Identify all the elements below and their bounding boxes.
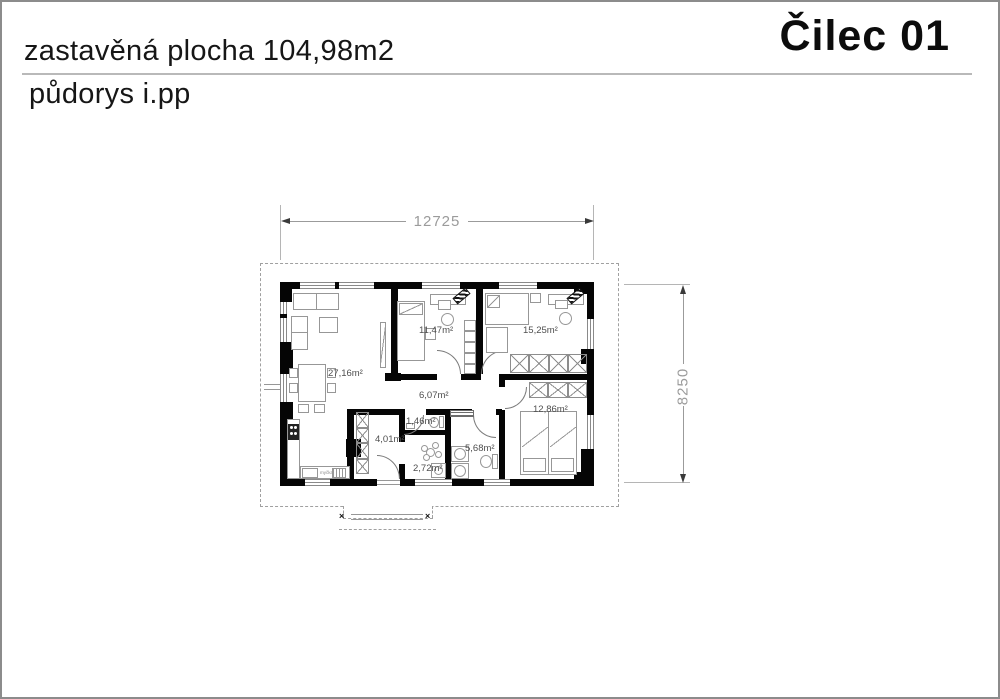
shelf-cell [356, 443, 369, 459]
chair [289, 383, 298, 393]
wall-segment [461, 374, 481, 380]
porch-post-marker: × [339, 512, 344, 521]
burner [290, 432, 293, 435]
dim-line [683, 292, 684, 364]
boiler-unit [432, 442, 439, 449]
dim-extension-line [280, 205, 281, 260]
wardrobe [529, 382, 587, 398]
room-label-living: 27,16m² [328, 368, 363, 379]
blanket-mark [550, 427, 576, 447]
dishrack [332, 468, 346, 478]
wall-segment [496, 409, 502, 415]
window [587, 319, 594, 349]
wardrobe-cell [529, 382, 548, 398]
project-name: Čilec 01 [779, 12, 950, 61]
room-label-bedroom2: 15,25m² [523, 325, 558, 336]
pillow [551, 458, 574, 472]
window [415, 479, 452, 486]
dim-line [468, 221, 588, 222]
header-divider [22, 73, 972, 75]
entrance-threshold [377, 484, 400, 485]
bed-center-line [548, 411, 549, 475]
wall-segment [400, 479, 415, 486]
dim-line [683, 406, 684, 476]
boiler-unit [423, 454, 430, 461]
coffee-table [319, 317, 338, 333]
room-label-tech: 2,72m² [413, 463, 443, 474]
porch-edge [339, 529, 436, 530]
dim-arrow-left [281, 218, 290, 224]
dining-table [298, 364, 326, 402]
pillow [399, 303, 423, 315]
burner [294, 426, 297, 429]
wardrobe-cell [548, 382, 567, 398]
radiator-mark [380, 322, 386, 368]
chair [298, 404, 309, 413]
window-mullion [280, 314, 287, 318]
chair [289, 368, 298, 378]
dim-width-label: 12725 [407, 213, 467, 230]
sofa-cushion-line [316, 294, 317, 309]
wall-segment [330, 479, 377, 486]
dim-arrow-down [680, 474, 686, 483]
window-sill-line [264, 384, 280, 385]
wall-segment [398, 374, 437, 380]
wall-segment [499, 374, 594, 380]
shower-sill [450, 410, 474, 417]
window [422, 282, 460, 289]
chair [314, 404, 325, 413]
wardrobe-cell [510, 354, 529, 373]
porch-line [351, 519, 423, 520]
wardrobe [510, 354, 587, 373]
window [587, 415, 594, 449]
dim-extension-line [593, 205, 594, 260]
closet-shelves [356, 412, 369, 474]
chair [327, 383, 336, 393]
window [305, 479, 330, 486]
sofa-cushion-line [292, 332, 307, 333]
shelf [464, 342, 476, 353]
toilet-tank [492, 454, 498, 469]
wall-segment [476, 289, 483, 374]
window [499, 282, 537, 289]
shelf [464, 364, 476, 374]
window [280, 374, 287, 402]
wardrobe-cell [549, 354, 568, 373]
sofa-side [291, 316, 308, 350]
burner [290, 426, 293, 429]
porch-line [351, 514, 423, 515]
wall-segment [499, 380, 505, 387]
wall-segment [587, 364, 594, 415]
shelf [464, 331, 476, 342]
boiler-unit [421, 445, 428, 452]
room-label-bedroom1: 11,47m² [419, 325, 453, 336]
room-label-hall: 6,07m² [419, 390, 449, 401]
room-label-bath: 5,68m² [465, 443, 495, 454]
kitchen-sink [302, 468, 318, 478]
toilet-tank [439, 416, 444, 428]
desk-chair [559, 312, 572, 325]
dim-height-label: 8250 [675, 359, 692, 415]
porch-post-marker: × [425, 512, 430, 521]
toilet-bowl [480, 455, 492, 468]
room-label-closet: 4,01m² [375, 434, 405, 445]
monitor [438, 300, 451, 310]
dim-arrow-up [680, 285, 686, 294]
shelf-cell [356, 459, 369, 475]
shelf [464, 353, 476, 364]
room-label-wc: 1,46m² [406, 416, 436, 427]
page-subtitle: půdorys i.pp [29, 78, 191, 111]
wall-segment [499, 410, 505, 479]
wardrobe-cell [568, 382, 587, 398]
boiler-unit [435, 451, 442, 458]
room-label-bedroom3: 12,86m² [533, 404, 568, 415]
blanket-mark [522, 427, 548, 447]
wall-segment [452, 479, 484, 486]
washer-drum [454, 465, 466, 477]
bedside-table [530, 293, 541, 303]
wall-corner [280, 282, 292, 302]
monitor [555, 300, 568, 309]
burner [294, 432, 297, 435]
window-mullion [335, 282, 339, 289]
page-title: zastavěná plocha 104,98m2 [24, 35, 394, 68]
roof-notch-edge [432, 506, 433, 518]
pillow [487, 295, 500, 308]
shelf-cell [356, 428, 369, 444]
dim-line [286, 221, 406, 222]
window [484, 479, 510, 486]
entrance-threshold [377, 480, 400, 481]
wardrobe-cell [568, 354, 587, 373]
dim-arrow-right [585, 218, 594, 224]
wall-corner [574, 472, 594, 486]
roof-notch-mask [344, 505, 432, 509]
wall-segment [374, 282, 422, 289]
shelf [464, 320, 476, 331]
wardrobe-cell [529, 354, 548, 373]
window-sill-line [264, 389, 280, 390]
pillow [523, 458, 546, 472]
cabinet [486, 327, 508, 353]
drawing-sheet: zastavěná plocha 104,98m2 půdorys i.pp Č… [0, 0, 1000, 699]
shelf-cell [356, 412, 369, 428]
